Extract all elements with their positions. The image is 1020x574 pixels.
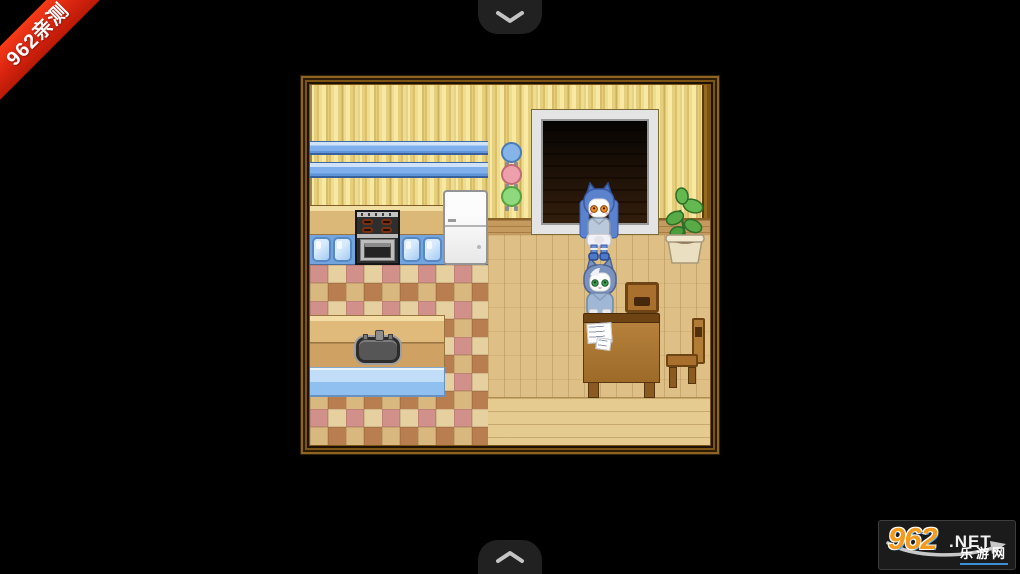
stove bbox=[355, 210, 400, 265]
faucet bbox=[375, 330, 384, 341]
oven-door bbox=[360, 239, 395, 261]
refrigerator bbox=[443, 190, 488, 265]
chevron-up-icon bbox=[495, 550, 525, 564]
potted-plant bbox=[662, 180, 708, 265]
wood-plank-floor-bottom bbox=[488, 397, 710, 445]
cabinet-door bbox=[423, 237, 442, 262]
blue-wall-rail bbox=[310, 162, 488, 178]
blue-wall-rail bbox=[310, 141, 488, 155]
game-frame bbox=[300, 75, 720, 455]
chevron-down-icon bbox=[495, 10, 525, 24]
scroll-down-tab[interactable] bbox=[478, 540, 542, 574]
side-chair bbox=[666, 318, 708, 390]
tested-ribbon: 962亲测 bbox=[0, 0, 115, 112]
scroll-up-tab[interactable] bbox=[478, 0, 542, 34]
green-wall-plate bbox=[501, 186, 523, 212]
site-watermark: 962 .NET 乐游网 bbox=[878, 520, 1016, 570]
burner bbox=[362, 227, 373, 233]
burner bbox=[381, 219, 392, 225]
sitting-cat-character bbox=[580, 257, 620, 319]
ribbon-label: 962亲测 bbox=[3, 0, 74, 70]
burner bbox=[362, 219, 373, 225]
dining-chair bbox=[625, 282, 659, 313]
standing-cat-character bbox=[577, 182, 621, 262]
cabinet-door bbox=[312, 237, 331, 262]
watermark-site-name: 乐游网 bbox=[960, 543, 1008, 565]
papers bbox=[595, 337, 612, 351]
burner bbox=[381, 227, 392, 233]
cabinet-door bbox=[402, 237, 421, 262]
game-canvas[interactable] bbox=[310, 85, 710, 445]
cabinet-door bbox=[333, 237, 352, 262]
sink bbox=[356, 337, 400, 363]
watermark-number: 962 bbox=[888, 521, 937, 557]
blue-mat bbox=[310, 367, 445, 397]
app-screen: 962亲测 962 .NET 乐游网 bbox=[0, 0, 1020, 574]
